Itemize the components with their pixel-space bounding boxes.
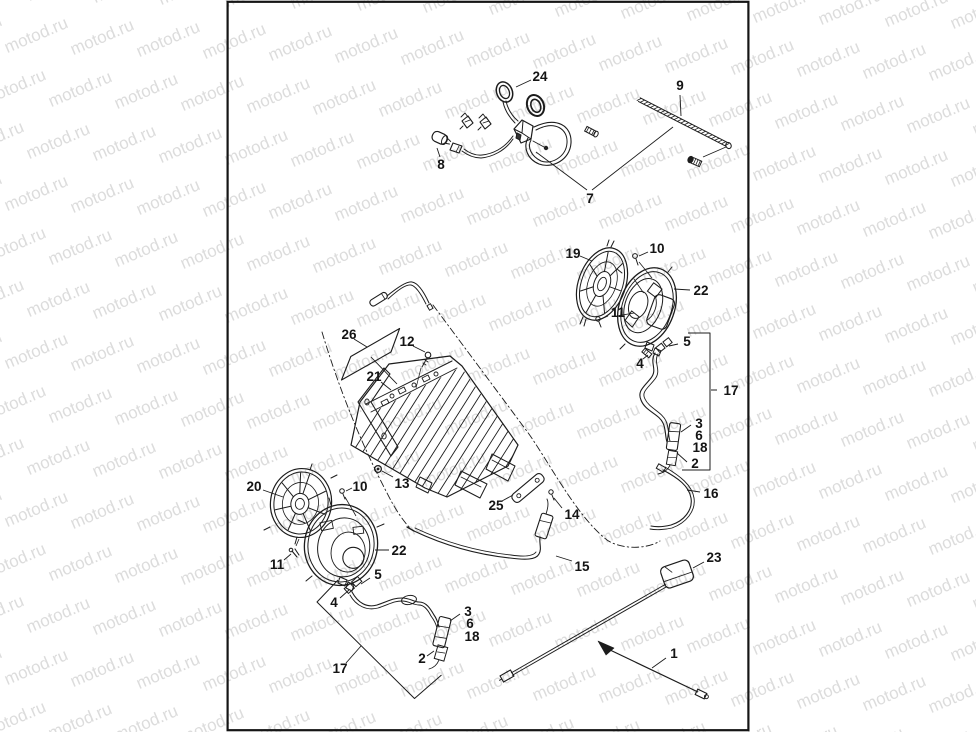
- svg-text:26: 26: [341, 327, 357, 342]
- svg-text:motod.ru: motod.ru: [881, 0, 950, 31]
- svg-text:motod.ru: motod.ru: [727, 193, 796, 237]
- svg-text:18: 18: [464, 629, 480, 644]
- svg-text:motod.ru: motod.ru: [397, 657, 466, 701]
- svg-text:motod.ru: motod.ru: [925, 357, 976, 401]
- svg-text:motod.ru: motod.ru: [881, 145, 950, 189]
- svg-text:motod.ru: motod.ru: [947, 147, 976, 191]
- svg-text:motod.ru: motod.ru: [155, 597, 224, 641]
- svg-text:motod.ru: motod.ru: [199, 651, 268, 695]
- svg-text:motod.ru: motod.ru: [463, 185, 532, 229]
- svg-text:motod.ru: motod.ru: [837, 723, 906, 732]
- svg-text:motod.ru: motod.ru: [749, 141, 818, 185]
- svg-text:1: 1: [670, 646, 678, 661]
- svg-text:motod.ru: motod.ru: [551, 451, 620, 495]
- svg-text:18: 18: [692, 440, 708, 455]
- svg-text:motod.ru: motod.ru: [265, 337, 334, 381]
- svg-text:motod.ru: motod.ru: [0, 11, 5, 55]
- svg-text:motod.ru: motod.ru: [463, 27, 532, 71]
- svg-text:motod.ru: motod.ru: [573, 399, 642, 443]
- svg-text:motod.ru: motod.ru: [815, 301, 884, 345]
- svg-text:motod.ru: motod.ru: [683, 297, 752, 341]
- svg-text:motod.ru: motod.ru: [661, 191, 730, 235]
- svg-text:22: 22: [693, 283, 708, 298]
- svg-text:motod.ru: motod.ru: [947, 621, 976, 665]
- svg-text:motod.ru: motod.ru: [397, 499, 466, 543]
- svg-text:motod.ru: motod.ru: [375, 551, 444, 595]
- svg-text:motod.ru: motod.ru: [45, 541, 114, 585]
- svg-text:motod.ru: motod.ru: [23, 0, 92, 5]
- svg-text:motod.ru: motod.ru: [89, 121, 158, 165]
- svg-text:motod.ru: motod.ru: [837, 407, 906, 451]
- svg-text:motod.ru: motod.ru: [683, 613, 752, 657]
- svg-text:motod.ru: motod.ru: [859, 355, 928, 399]
- svg-text:motod.ru: motod.ru: [133, 491, 202, 535]
- svg-text:motod.ru: motod.ru: [551, 135, 620, 179]
- svg-text:17: 17: [723, 383, 738, 398]
- svg-text:motod.ru: motod.ru: [969, 727, 976, 732]
- svg-text:motod.ru: motod.ru: [771, 563, 840, 607]
- svg-text:motod.ru: motod.ru: [375, 709, 444, 732]
- svg-text:motod.ru: motod.ru: [199, 335, 268, 379]
- svg-text:motod.ru: motod.ru: [815, 0, 884, 29]
- svg-text:motod.ru: motod.ru: [925, 515, 976, 559]
- svg-text:motod.ru: motod.ru: [485, 607, 554, 651]
- svg-text:motod.ru: motod.ru: [463, 659, 532, 703]
- svg-text:motod.ru: motod.ru: [419, 131, 488, 175]
- svg-text:motod.ru: motod.ru: [661, 33, 730, 77]
- svg-text:motod.ru: motod.ru: [595, 189, 664, 233]
- svg-text:4: 4: [636, 356, 644, 371]
- svg-text:motod.ru: motod.ru: [551, 0, 620, 21]
- svg-text:motod.ru: motod.ru: [859, 513, 928, 557]
- svg-text:motod.ru: motod.ru: [903, 567, 972, 611]
- svg-text:motod.ru: motod.ru: [111, 227, 180, 271]
- svg-text:motod.ru: motod.ru: [749, 457, 818, 501]
- svg-text:motod.ru: motod.ru: [859, 671, 928, 715]
- svg-text:motod.ru: motod.ru: [89, 0, 158, 7]
- svg-text:16: 16: [703, 486, 719, 501]
- svg-text:motod.ru: motod.ru: [815, 143, 884, 187]
- svg-text:motod.ru: motod.ru: [969, 95, 976, 139]
- svg-text:motod.ru: motod.ru: [111, 69, 180, 113]
- svg-text:15: 15: [574, 559, 590, 574]
- svg-text:motod.ru: motod.ru: [815, 617, 884, 661]
- svg-text:motod.ru: motod.ru: [287, 601, 356, 645]
- svg-text:motod.ru: motod.ru: [45, 699, 114, 732]
- svg-text:10: 10: [352, 479, 367, 494]
- svg-text:motod.ru: motod.ru: [243, 705, 312, 732]
- svg-text:motod.ru: motod.ru: [67, 173, 136, 217]
- svg-text:motod.ru: motod.ru: [199, 19, 268, 63]
- svg-text:motod.ru: motod.ru: [925, 199, 976, 243]
- svg-text:motod.ru: motod.ru: [595, 505, 664, 549]
- svg-text:motod.ru: motod.ru: [705, 245, 774, 289]
- svg-text:motod.ru: motod.ru: [903, 251, 972, 295]
- svg-text:motod.ru: motod.ru: [1, 645, 70, 689]
- svg-text:motod.ru: motod.ru: [881, 303, 950, 347]
- svg-text:motod.ru: motod.ru: [1, 329, 70, 373]
- svg-text:motod.ru: motod.ru: [199, 493, 268, 537]
- svg-text:motod.ru: motod.ru: [199, 177, 268, 221]
- svg-text:motod.ru: motod.ru: [375, 235, 444, 279]
- svg-text:motod.ru: motod.ru: [0, 0, 27, 3]
- svg-text:motod.ru: motod.ru: [353, 287, 422, 331]
- svg-text:motod.ru: motod.ru: [265, 653, 334, 697]
- svg-text:20: 20: [246, 479, 261, 494]
- svg-text:motod.ru: motod.ru: [529, 29, 598, 73]
- svg-text:motod.ru: motod.ru: [243, 389, 312, 433]
- svg-text:motod.ru: motod.ru: [155, 0, 224, 9]
- svg-text:motod.ru: motod.ru: [969, 569, 976, 613]
- svg-text:motod.ru: motod.ru: [903, 725, 972, 732]
- svg-text:motod.ru: motod.ru: [881, 461, 950, 505]
- svg-text:motod.ru: motod.ru: [177, 387, 246, 431]
- svg-text:motod.ru: motod.ru: [749, 615, 818, 659]
- svg-text:motod.ru: motod.ru: [771, 405, 840, 449]
- svg-text:motod.ru: motod.ru: [397, 25, 466, 69]
- svg-text:motod.ru: motod.ru: [925, 673, 976, 717]
- svg-text:motod.ru: motod.ru: [331, 23, 400, 67]
- svg-text:motod.ru: motod.ru: [0, 169, 5, 213]
- svg-text:motod.ru: motod.ru: [0, 433, 27, 477]
- svg-text:motod.ru: motod.ru: [45, 383, 114, 427]
- svg-text:motod.ru: motod.ru: [89, 279, 158, 323]
- svg-text:motod.ru: motod.ru: [881, 619, 950, 663]
- svg-text:motod.ru: motod.ru: [0, 591, 27, 635]
- svg-text:motod.ru: motod.ru: [0, 327, 5, 371]
- svg-text:motod.ru: motod.ru: [89, 595, 158, 639]
- svg-text:motod.ru: motod.ru: [529, 345, 598, 389]
- svg-text:motod.ru: motod.ru: [177, 703, 246, 732]
- svg-text:17: 17: [332, 661, 347, 676]
- svg-text:motod.ru: motod.ru: [617, 0, 686, 23]
- svg-text:motod.ru: motod.ru: [727, 667, 796, 711]
- svg-text:motod.ru: motod.ru: [0, 223, 49, 267]
- svg-text:motod.ru: motod.ru: [705, 87, 774, 131]
- svg-text:22: 22: [391, 543, 406, 558]
- svg-text:motod.ru: motod.ru: [947, 463, 976, 507]
- svg-text:2: 2: [691, 456, 699, 471]
- svg-text:motod.ru: motod.ru: [23, 593, 92, 637]
- svg-text:motod.ru: motod.ru: [177, 545, 246, 589]
- svg-text:motod.ru: motod.ru: [837, 565, 906, 609]
- svg-text:motod.ru: motod.ru: [705, 403, 774, 447]
- svg-text:motod.ru: motod.ru: [771, 721, 840, 732]
- svg-text:10: 10: [649, 241, 664, 256]
- svg-text:7: 7: [586, 191, 594, 206]
- svg-text:motod.ru: motod.ru: [0, 65, 49, 109]
- svg-text:motod.ru: motod.ru: [177, 229, 246, 273]
- svg-text:motod.ru: motod.ru: [1, 13, 70, 57]
- svg-text:23: 23: [706, 550, 722, 565]
- svg-text:motod.ru: motod.ru: [661, 665, 730, 709]
- svg-text:motod.ru: motod.ru: [353, 603, 422, 647]
- svg-text:14: 14: [564, 507, 580, 522]
- svg-text:motod.ru: motod.ru: [507, 81, 576, 125]
- svg-text:motod.ru: motod.ru: [771, 247, 840, 291]
- svg-text:motod.ru: motod.ru: [925, 41, 976, 85]
- svg-text:motod.ru: motod.ru: [947, 0, 976, 33]
- svg-text:motod.ru: motod.ru: [793, 353, 862, 397]
- svg-text:motod.ru: motod.ru: [793, 37, 862, 81]
- svg-text:motod.ru: motod.ru: [441, 237, 510, 281]
- svg-text:motod.ru: motod.ru: [309, 75, 378, 119]
- svg-text:motod.ru: motod.ru: [67, 647, 136, 691]
- svg-text:11: 11: [270, 557, 285, 572]
- svg-text:motod.ru: motod.ru: [793, 195, 862, 239]
- svg-text:motod.ru: motod.ru: [45, 67, 114, 111]
- svg-text:motod.ru: motod.ru: [0, 275, 27, 319]
- svg-text:motod.ru: motod.ru: [67, 15, 136, 59]
- svg-text:motod.ru: motod.ru: [507, 555, 576, 599]
- svg-text:motod.ru: motod.ru: [309, 707, 378, 732]
- svg-text:motod.ru: motod.ru: [133, 175, 202, 219]
- svg-text:motod.ru: motod.ru: [969, 253, 976, 297]
- svg-text:motod.ru: motod.ru: [727, 509, 796, 553]
- svg-text:motod.ru: motod.ru: [89, 437, 158, 481]
- svg-text:motod.ru: motod.ru: [793, 511, 862, 555]
- svg-text:motod.ru: motod.ru: [287, 127, 356, 171]
- svg-text:motod.ru: motod.ru: [859, 39, 928, 83]
- svg-text:motod.ru: motod.ru: [133, 17, 202, 61]
- svg-text:motod.ru: motod.ru: [749, 0, 818, 27]
- svg-text:motod.ru: motod.ru: [947, 305, 976, 349]
- svg-text:8: 8: [437, 157, 445, 172]
- svg-text:motod.ru: motod.ru: [23, 119, 92, 163]
- svg-text:motod.ru: motod.ru: [221, 125, 290, 169]
- svg-text:motod.ru: motod.ru: [463, 343, 532, 387]
- svg-text:motod.ru: motod.ru: [0, 643, 5, 687]
- svg-text:motod.ru: motod.ru: [331, 497, 400, 541]
- svg-text:11: 11: [611, 305, 626, 320]
- svg-text:19: 19: [565, 246, 580, 261]
- svg-text:motod.ru: motod.ru: [419, 289, 488, 333]
- svg-text:motod.ru: motod.ru: [661, 349, 730, 393]
- svg-text:motod.ru: motod.ru: [0, 697, 49, 732]
- svg-text:motod.ru: motod.ru: [133, 333, 202, 377]
- svg-text:motod.ru: motod.ru: [375, 77, 444, 121]
- svg-text:motod.ru: motod.ru: [397, 183, 466, 227]
- svg-text:4: 4: [330, 595, 338, 610]
- svg-text:motod.ru: motod.ru: [595, 31, 664, 75]
- svg-text:motod.ru: motod.ru: [661, 507, 730, 551]
- svg-text:motod.ru: motod.ru: [837, 91, 906, 135]
- svg-text:5: 5: [683, 334, 691, 349]
- svg-text:9: 9: [676, 78, 684, 93]
- svg-text:motod.ru: motod.ru: [155, 281, 224, 325]
- svg-text:motod.ru: motod.ru: [287, 285, 356, 329]
- svg-text:motod.ru: motod.ru: [485, 291, 554, 335]
- svg-text:motod.ru: motod.ru: [111, 543, 180, 587]
- svg-text:motod.ru: motod.ru: [903, 409, 972, 453]
- svg-text:12: 12: [399, 334, 414, 349]
- svg-text:motod.ru: motod.ru: [155, 123, 224, 167]
- svg-text:motod.ru: motod.ru: [67, 331, 136, 375]
- svg-text:motod.ru: motod.ru: [683, 0, 752, 25]
- svg-text:motod.ru: motod.ru: [353, 129, 422, 173]
- svg-text:motod.ru: motod.ru: [243, 231, 312, 275]
- svg-text:motod.ru: motod.ru: [969, 411, 976, 455]
- svg-text:motod.ru: motod.ru: [287, 443, 356, 487]
- svg-text:motod.ru: motod.ru: [837, 249, 906, 293]
- svg-text:motod.ru: motod.ru: [309, 233, 378, 277]
- svg-text:24: 24: [532, 69, 548, 84]
- svg-text:motod.ru: motod.ru: [683, 139, 752, 183]
- svg-text:motod.ru: motod.ru: [771, 89, 840, 133]
- svg-text:25: 25: [488, 498, 504, 513]
- svg-text:motod.ru: motod.ru: [0, 117, 27, 161]
- svg-text:motod.ru: motod.ru: [67, 489, 136, 533]
- svg-text:motod.ru: motod.ru: [727, 35, 796, 79]
- svg-text:motod.ru: motod.ru: [0, 539, 49, 583]
- svg-text:motod.ru: motod.ru: [859, 197, 928, 241]
- svg-text:motod.ru: motod.ru: [573, 83, 642, 127]
- svg-text:motod.ru: motod.ru: [0, 381, 49, 425]
- svg-text:motod.ru: motod.ru: [903, 93, 972, 137]
- svg-text:motod.ru: motod.ru: [1, 171, 70, 215]
- svg-text:motod.ru: motod.ru: [265, 179, 334, 223]
- svg-text:motod.ru: motod.ru: [331, 181, 400, 225]
- svg-text:motod.ru: motod.ru: [529, 661, 598, 705]
- svg-text:motod.ru: motod.ru: [243, 73, 312, 117]
- svg-text:motod.ru: motod.ru: [45, 225, 114, 269]
- svg-text:motod.ru: motod.ru: [23, 277, 92, 321]
- svg-text:motod.ru: motod.ru: [155, 439, 224, 483]
- svg-text:motod.ru: motod.ru: [705, 561, 774, 605]
- svg-text:motod.ru: motod.ru: [441, 79, 510, 123]
- svg-text:motod.ru: motod.ru: [221, 599, 290, 643]
- svg-text:motod.ru: motod.ru: [793, 669, 862, 713]
- svg-text:13: 13: [394, 476, 410, 491]
- svg-text:5: 5: [374, 567, 382, 582]
- svg-text:motod.ru: motod.ru: [111, 701, 180, 732]
- svg-text:2: 2: [418, 651, 426, 666]
- svg-text:motod.ru: motod.ru: [749, 299, 818, 343]
- svg-text:motod.ru: motod.ru: [815, 459, 884, 503]
- svg-text:motod.ru: motod.ru: [441, 553, 510, 597]
- svg-text:motod.ru: motod.ru: [0, 485, 5, 529]
- svg-text:motod.ru: motod.ru: [221, 283, 290, 327]
- svg-text:motod.ru: motod.ru: [1, 487, 70, 531]
- svg-text:motod.ru: motod.ru: [595, 663, 664, 707]
- svg-text:motod.ru: motod.ru: [111, 385, 180, 429]
- svg-text:motod.ru: motod.ru: [23, 435, 92, 479]
- svg-text:motod.ru: motod.ru: [265, 21, 334, 65]
- svg-text:motod.ru: motod.ru: [441, 711, 510, 732]
- svg-text:motod.ru: motod.ru: [133, 649, 202, 693]
- svg-text:motod.ru: motod.ru: [177, 71, 246, 115]
